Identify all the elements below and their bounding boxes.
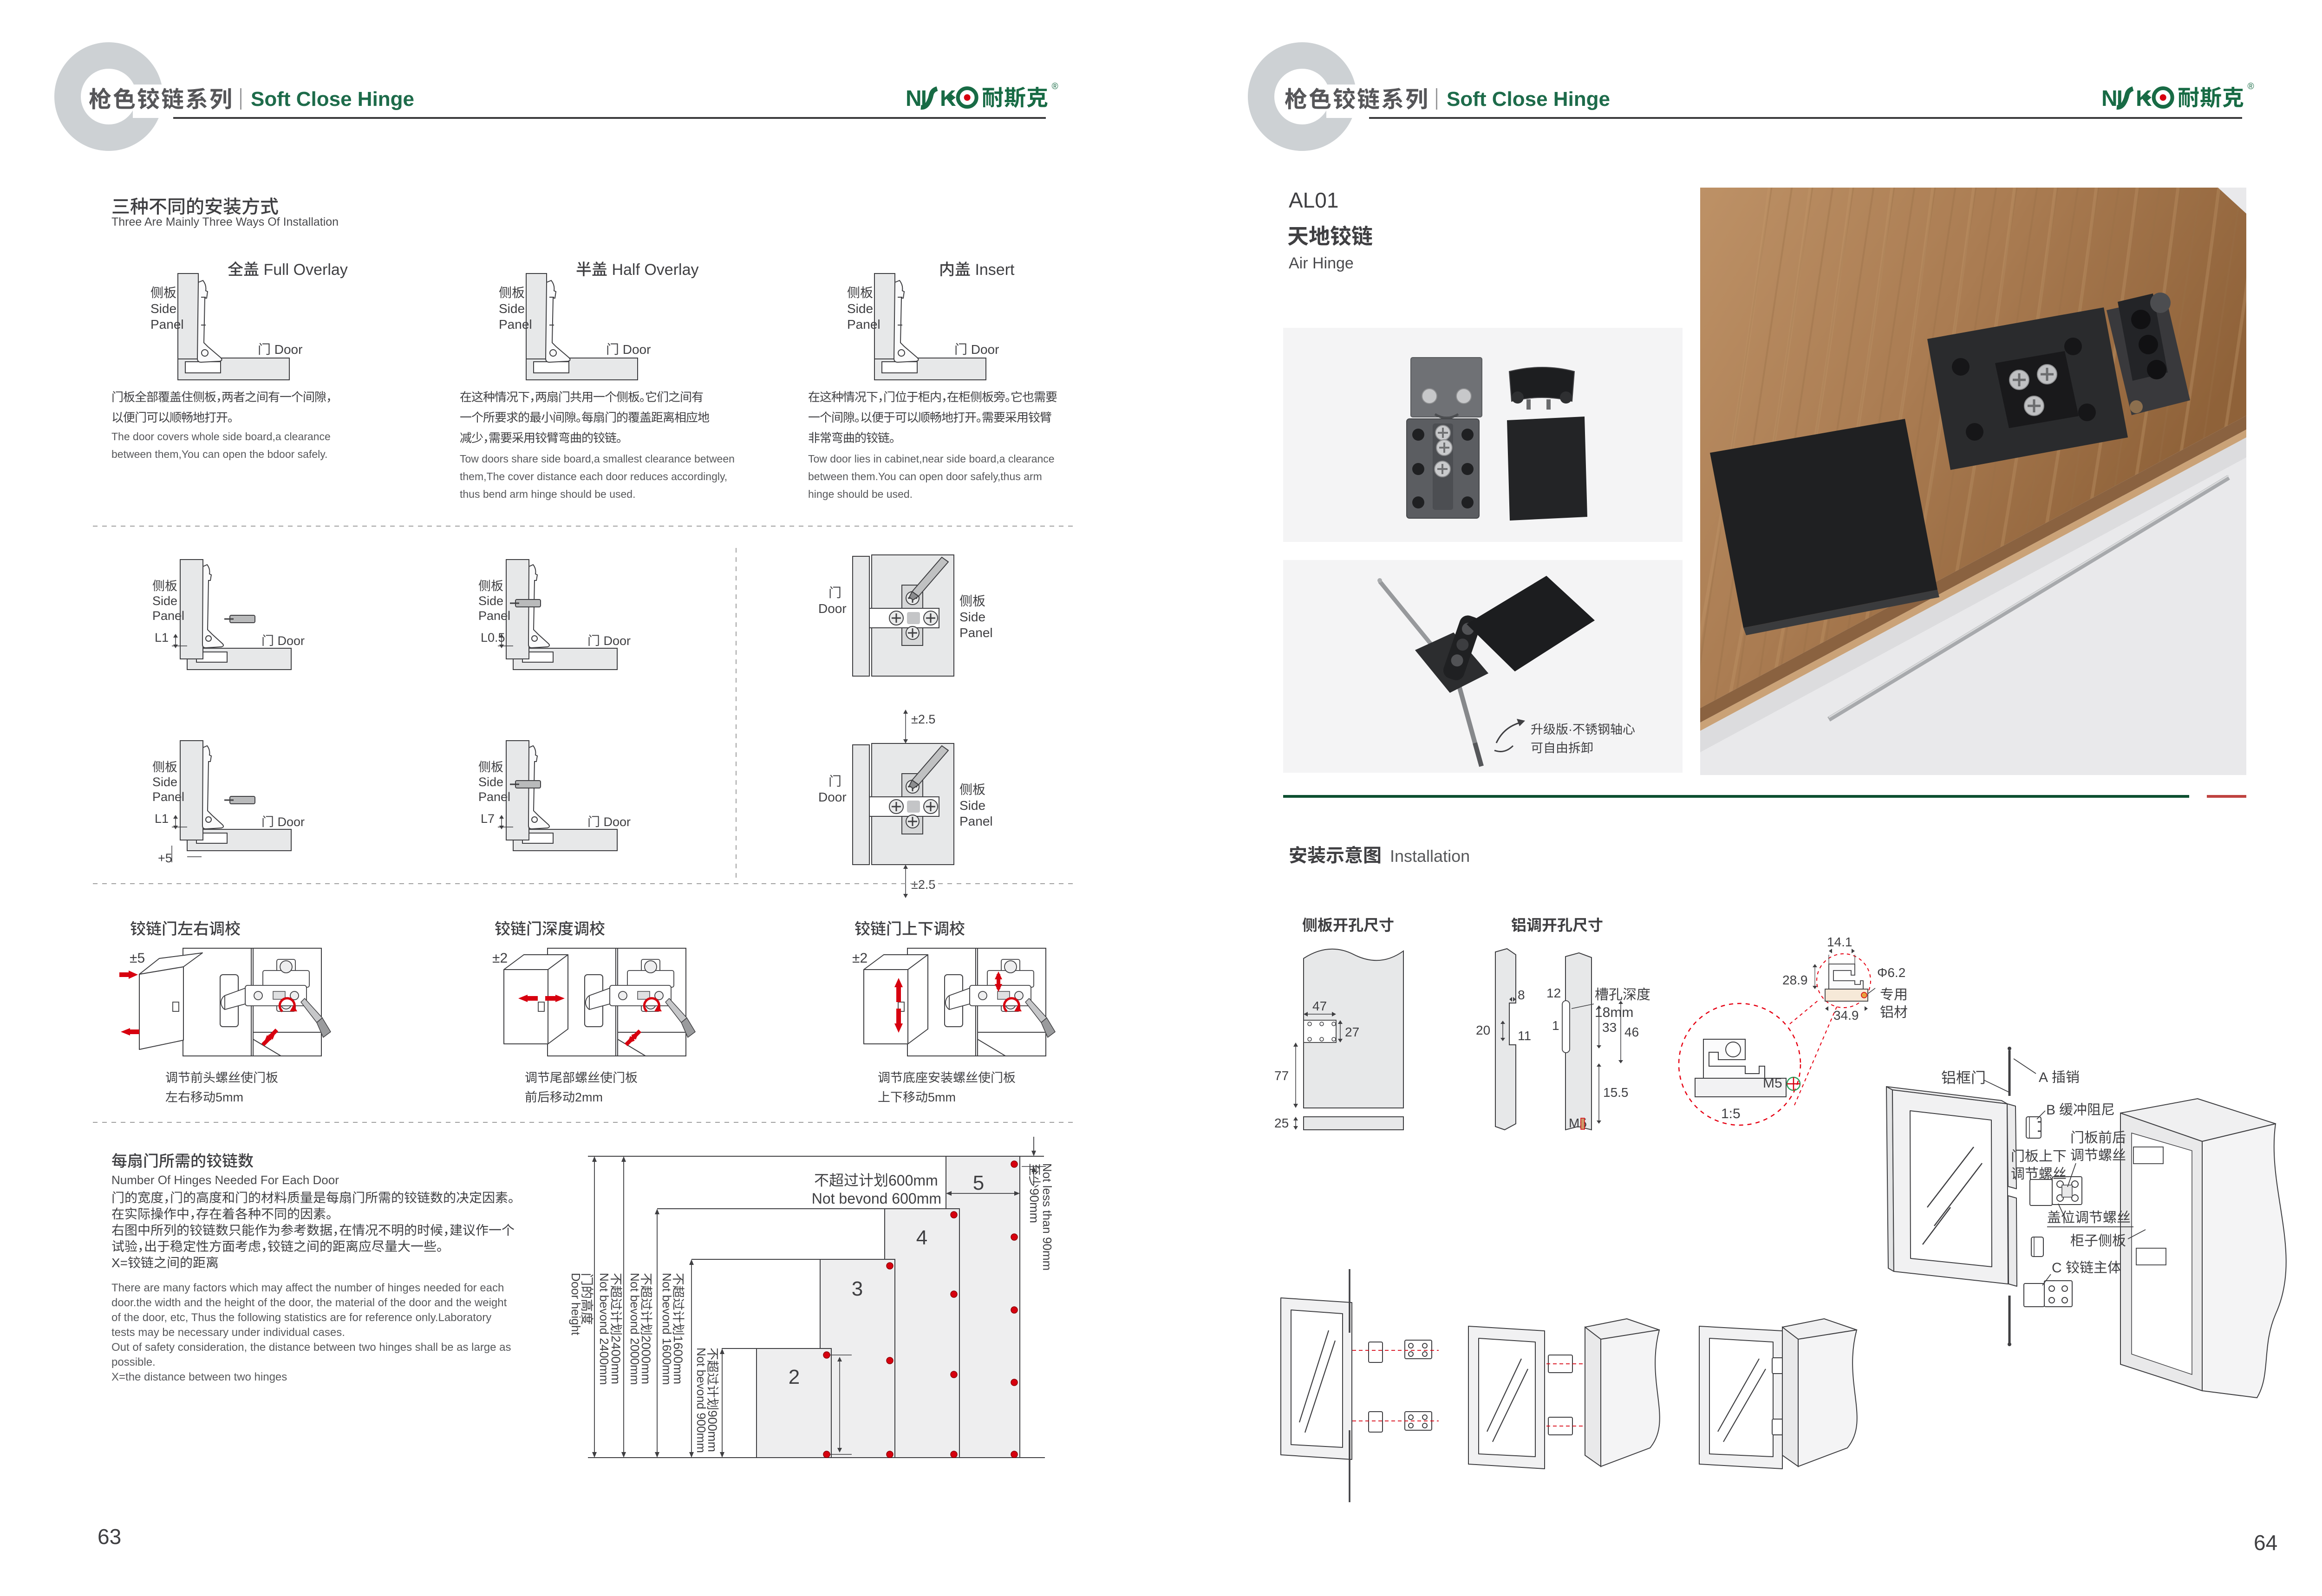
svg-text:possible.: possible.	[111, 1356, 156, 1368]
svg-text:Insert: Insert	[975, 261, 1015, 279]
svg-text:X=: X=	[111, 1256, 128, 1270]
svg-text:+5: +5	[158, 851, 172, 865]
svg-text:Tow doors share side board,a s: Tow doors share side board,a smallest cl…	[460, 453, 735, 465]
svg-text:Tow door lies in cabinet,near: Tow door lies in cabinet,near side board…	[808, 453, 1055, 465]
svg-text:Number Of Hinges Needed For Ea: Number Of Hinges Needed For Each Door	[111, 1173, 339, 1187]
svg-text:Side: Side	[152, 594, 177, 608]
svg-text:Side: Side	[478, 594, 503, 608]
svg-text:L1: L1	[155, 631, 169, 645]
svg-text:Door: Door	[818, 790, 847, 804]
svg-text:Installation: Installation	[1390, 847, 1470, 866]
svg-text:15.5: 15.5	[1603, 1085, 1629, 1100]
svg-text:±5: ±5	[130, 951, 145, 966]
svg-text:Air Hinge: Air Hinge	[1289, 254, 1354, 272]
svg-text:A: A	[2039, 1070, 2048, 1085]
svg-text:Soft Close Hinge: Soft Close Hinge	[251, 88, 414, 111]
svg-text:Door: Door	[274, 342, 303, 357]
svg-text:X=the distance between two hin: X=the distance between two hinges	[111, 1371, 287, 1383]
svg-text:Door: Door	[278, 634, 305, 648]
svg-text:3: 3	[852, 1277, 863, 1300]
svg-text:Panel: Panel	[478, 609, 510, 623]
svg-text:28.9: 28.9	[1782, 973, 1808, 987]
svg-text:Door: Door	[971, 342, 999, 357]
svg-text:between them,You can open the: between them,You can open the bdoor safe…	[111, 448, 327, 460]
svg-text:Side: Side	[959, 798, 985, 813]
svg-text:Side: Side	[152, 775, 177, 789]
svg-text:L1: L1	[155, 812, 169, 826]
svg-text:B: B	[2046, 1102, 2055, 1118]
svg-text:The door covers whole side boa: The door covers whole side board,a clear…	[111, 430, 331, 443]
svg-text:Door: Door	[623, 342, 651, 357]
svg-text:1:5: 1:5	[1721, 1106, 1741, 1121]
svg-text:Panel: Panel	[959, 625, 993, 640]
svg-text:5mm: 5mm	[215, 1090, 243, 1104]
svg-text:·: ·	[1568, 723, 1572, 736]
svg-text:20: 20	[1476, 1023, 1490, 1037]
svg-text:12: 12	[1546, 986, 1561, 1000]
svg-text:Out of safety consideration, t: Out of safety consideration, the distanc…	[111, 1341, 511, 1354]
svg-text:Φ6.2: Φ6.2	[1877, 965, 1905, 980]
svg-text:±2.5: ±2.5	[911, 712, 935, 726]
svg-text:AL01: AL01	[1289, 188, 1338, 212]
svg-text:Door: Door	[604, 815, 631, 829]
svg-text:25: 25	[1274, 1116, 1289, 1130]
svg-text:Side: Side	[150, 301, 176, 316]
svg-text:1: 1	[1552, 1018, 1559, 1033]
svg-text:tests may be necessary under i: tests may be necessary under individual …	[111, 1326, 345, 1339]
svg-text:Not less than 90mm: Not less than 90mm	[1040, 1163, 1054, 1270]
svg-text:33: 33	[1602, 1020, 1617, 1035]
svg-text:900mm: 900mm	[705, 1410, 719, 1452]
svg-text:Panel: Panel	[152, 609, 184, 623]
svg-text:5mm: 5mm	[928, 1090, 956, 1104]
svg-text:90mm: 90mm	[1027, 1188, 1041, 1223]
svg-text:C: C	[2052, 1260, 2062, 1276]
svg-text:There are many factors which m: There are many factors which may affect …	[111, 1282, 504, 1294]
svg-text:thus bend arm hinge should be: thus bend arm hinge should be used.	[460, 488, 636, 500]
svg-text:Side: Side	[959, 610, 985, 624]
svg-text:door.the width and the height: door.the width and the height of the doo…	[111, 1296, 507, 1309]
svg-text:Soft Close Hinge: Soft Close Hinge	[1447, 88, 1610, 111]
svg-text:2400mm: 2400mm	[609, 1335, 623, 1384]
svg-text:Side: Side	[499, 301, 525, 316]
svg-text:Panel: Panel	[847, 317, 881, 332]
svg-text:Door height: Door height	[569, 1273, 583, 1335]
svg-text:Panel: Panel	[478, 790, 510, 804]
svg-text:27: 27	[1345, 1025, 1359, 1039]
svg-text:hinge should be used.: hinge should be used.	[808, 488, 913, 500]
svg-text:47: 47	[1312, 999, 1327, 1013]
svg-text:Three Are Mainly Three Ways Of: Three Are Mainly Three Ways Of Installat…	[111, 215, 339, 228]
svg-text:14.1: 14.1	[1827, 935, 1852, 949]
svg-text:18mm: 18mm	[1595, 1005, 1633, 1020]
svg-text:64: 64	[2254, 1531, 2277, 1555]
svg-text:Panel: Panel	[152, 790, 184, 804]
svg-text:63: 63	[98, 1524, 121, 1549]
svg-text:L7: L7	[481, 812, 495, 826]
svg-text:2000mm: 2000mm	[639, 1335, 653, 1384]
svg-text:8: 8	[1518, 988, 1525, 1002]
svg-text:34.9: 34.9	[1833, 1008, 1859, 1023]
svg-text:4: 4	[916, 1226, 927, 1249]
svg-text:M5: M5	[1763, 1075, 1782, 1091]
svg-text:Panel: Panel	[959, 814, 993, 828]
svg-text:2: 2	[789, 1366, 800, 1388]
svg-text:5: 5	[973, 1172, 984, 1194]
svg-text:Half Overlay: Half Overlay	[612, 261, 698, 279]
svg-text:Door: Door	[818, 601, 847, 616]
svg-text:them,The cover distance each d: them,The cover distance each door reduce…	[460, 470, 727, 482]
svg-text:2mm: 2mm	[575, 1090, 603, 1104]
svg-text:1600mm: 1600mm	[671, 1335, 685, 1384]
svg-text:®: ®	[2248, 82, 2254, 91]
svg-text:±2.5: ±2.5	[911, 878, 935, 892]
svg-text:Panel: Panel	[499, 317, 532, 332]
svg-text:between them.You can open door: between them.You can open door safely,th…	[808, 470, 1042, 482]
svg-text:11: 11	[1518, 1029, 1531, 1043]
svg-text:46: 46	[1624, 1025, 1639, 1039]
svg-text:Full Overlay: Full Overlay	[263, 261, 347, 279]
svg-text:±2: ±2	[852, 951, 867, 966]
svg-text:Side: Side	[847, 301, 873, 316]
svg-text:±2: ±2	[492, 951, 508, 966]
svg-text:Door: Door	[604, 634, 631, 648]
svg-text:600mm: 600mm	[888, 1172, 938, 1189]
svg-text:Not bevond 600mm: Not bevond 600mm	[812, 1190, 941, 1207]
svg-text:®: ®	[1052, 82, 1058, 91]
svg-text:Panel: Panel	[150, 317, 184, 332]
svg-text:Side: Side	[478, 775, 503, 789]
svg-text:Door: Door	[278, 815, 305, 829]
svg-text:of the door, etc, Thus the fol: of the door, etc, Thus the following sta…	[111, 1311, 491, 1324]
svg-text:77: 77	[1274, 1068, 1289, 1083]
